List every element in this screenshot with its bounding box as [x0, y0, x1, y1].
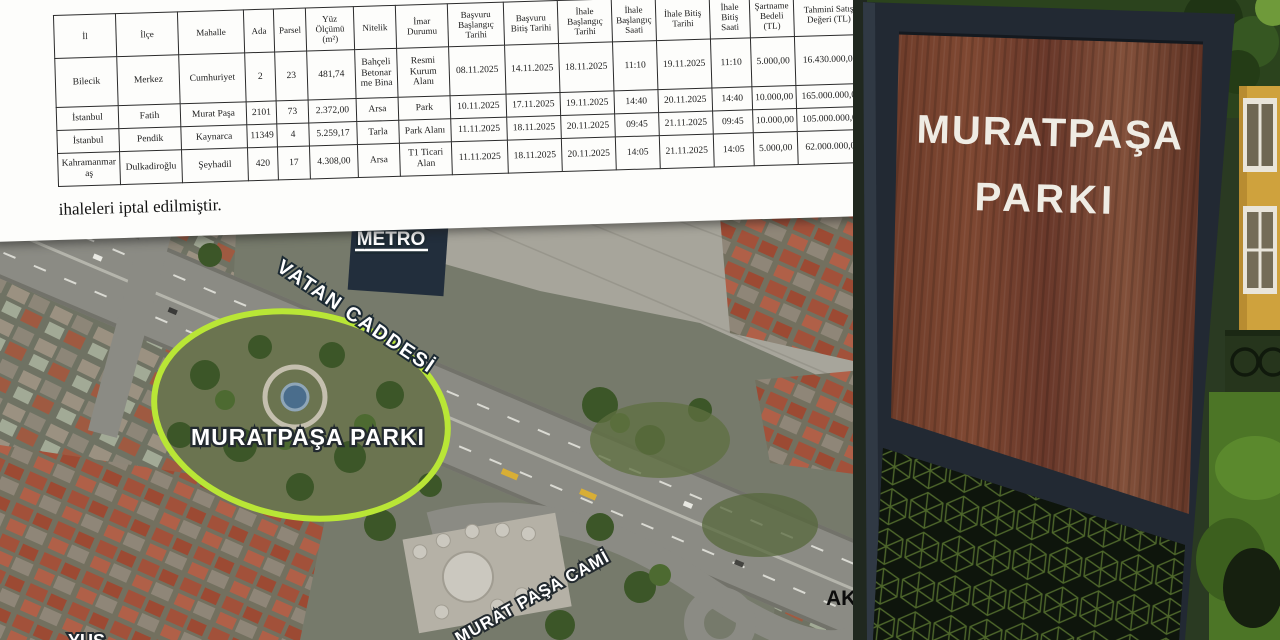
tender-table: İlİlçeMahalleAdaParselYüz Ölçümü (m²)Nit…: [53, 0, 869, 187]
column-header: Şartname Bedeli (TL): [749, 0, 794, 38]
table-cell: Şeyhadil: [182, 148, 249, 183]
label-district-bottom: YUS: [68, 631, 105, 640]
table-cell: Park: [398, 96, 451, 121]
table-cell: 5.259,17: [309, 122, 358, 146]
table-cell: 17: [277, 146, 310, 180]
grass-patch-2: [702, 493, 818, 557]
photo-region: MURATPAŞA PARKI: [853, 0, 1280, 640]
table-cell: 10.000,00: [753, 109, 798, 133]
table-cell: Kahramanmaraş: [58, 152, 121, 187]
table-cell: İstanbul: [57, 129, 120, 154]
table-cell: Fatih: [118, 104, 181, 129]
sign-photo: MURATPAŞA PARKI: [853, 0, 1280, 640]
table-cell: 2: [245, 52, 276, 102]
table-cell: 18.11.2025: [559, 42, 614, 93]
table-cell: 20.11.2025: [658, 88, 713, 113]
table-cell: İstanbul: [56, 106, 119, 131]
table-cell: 481,74: [307, 50, 356, 100]
column-header: Parsel: [273, 8, 306, 52]
column-header: Mahalle: [177, 10, 244, 55]
table-cell: 18.11.2025: [507, 116, 562, 141]
sign-title-line2: PARKI: [974, 175, 1117, 223]
table-cell: Park Alanı: [399, 119, 452, 144]
table-cell: 4: [277, 123, 310, 147]
table-cell: 20.11.2025: [561, 114, 616, 139]
table-cell: 11:10: [612, 41, 657, 91]
column-header: Yüz Ölçümü (m²): [305, 7, 354, 51]
table-cell: 19.11.2025: [656, 39, 711, 90]
table-cell: Arsa: [357, 143, 400, 177]
tender-document: İlİlçeMahalleAdaParselYüz Ölçümü (m²)Nit…: [0, 0, 883, 242]
table-cell: 19.11.2025: [560, 91, 615, 116]
table-cell: Bilecik: [55, 57, 118, 108]
table-cell: 5.000,00: [750, 37, 795, 87]
table-cell: 14:40: [614, 90, 659, 114]
table-cell: 14:40: [712, 87, 753, 111]
table-cell: Tarla: [357, 120, 400, 144]
table-cell: 17.11.2025: [506, 93, 561, 118]
column-header: İhale Bitiş Tarihi: [655, 0, 710, 41]
table-cell: Pendik: [119, 127, 182, 152]
table-cell: 14:05: [713, 133, 754, 167]
sign-title-line1: MURATPAŞA: [916, 108, 1185, 159]
table-cell: 08.11.2025: [449, 45, 506, 96]
column-header: İhale Bitiş Saati: [709, 0, 750, 39]
grass-patch: [590, 402, 730, 478]
column-header: Başvuru Bitiş Tarihi: [503, 1, 558, 46]
column-header: İhale Başlangıç Tarihi: [557, 0, 612, 44]
column-header: Ada: [243, 9, 274, 53]
map-satellite: METRO VATAN CADDESİ MURATPAŞA PARKI MURA…: [0, 195, 862, 640]
table-cell: 11.11.2025: [451, 140, 508, 175]
table-cell: 09:45: [713, 110, 754, 134]
table-cell: 21.11.2025: [659, 134, 714, 169]
label-metro: METRO: [357, 229, 426, 250]
table-cell: Dulkadiroğlu: [120, 150, 183, 185]
fence: [1225, 330, 1280, 394]
column-header: İmar Durumu: [395, 4, 448, 49]
table-cell: Kaynarca: [181, 125, 248, 150]
column-header: İhale Başlangıç Saati: [611, 0, 656, 42]
column-header: Nitelik: [353, 5, 396, 49]
label-park: MURATPAŞA PARKI: [191, 424, 425, 450]
table-cell: Bahçeli Betonarme Bina: [355, 48, 398, 98]
table-cell: Cumhuriyet: [179, 53, 246, 104]
table-cell: 18.11.2025: [507, 138, 562, 173]
table-cell: 23: [275, 51, 308, 101]
city-blocks-right: [755, 370, 862, 475]
news-collage: METRO VATAN CADDESİ MURATPAŞA PARKI MURA…: [0, 0, 1280, 640]
table-cell: 2101: [246, 101, 277, 125]
table-cell: 14:05: [615, 136, 660, 170]
table-cell: 420: [247, 147, 278, 181]
table-cell: Arsa: [356, 97, 399, 121]
map-region: METRO VATAN CADDESİ MURATPAŞA PARKI MURA…: [0, 195, 862, 640]
table-cell: 11.11.2025: [451, 117, 508, 142]
column-header: İl: [53, 14, 116, 59]
table-cell: 20.11.2025: [561, 137, 616, 172]
table-cell: T1 Ticari Alan: [399, 142, 452, 177]
table-cell: 10.000,00: [752, 86, 797, 110]
table-cell: 11349: [247, 124, 278, 148]
table-cell: Resmi Kurum Alanı: [397, 47, 450, 98]
table-cell: Merkez: [117, 55, 180, 106]
table-cell: Murat Paşa: [180, 102, 247, 127]
table-cell: 5.000,00: [753, 131, 798, 165]
table-cell: 11:10: [710, 38, 751, 88]
table-cell: 4.308,00: [309, 145, 358, 179]
column-header: Başvuru Başlangıç Tarihi: [447, 2, 504, 47]
table-cell: 09:45: [615, 113, 660, 137]
yellow-building: [1239, 86, 1280, 348]
column-header: İlçe: [115, 12, 178, 57]
park-sign: MURATPAŞA PARKI: [863, 2, 1235, 640]
table-cell: 21.11.2025: [659, 111, 714, 136]
tender-table-body: BilecikMerkezCumhuriyet223481,74Bahçeli …: [55, 34, 868, 186]
table-cell: 73: [276, 100, 309, 124]
table-cell: 2.372,00: [308, 99, 357, 123]
table-cell: 10.11.2025: [450, 94, 507, 119]
fountain: [282, 384, 308, 410]
table-cell: 14.11.2025: [505, 44, 560, 95]
